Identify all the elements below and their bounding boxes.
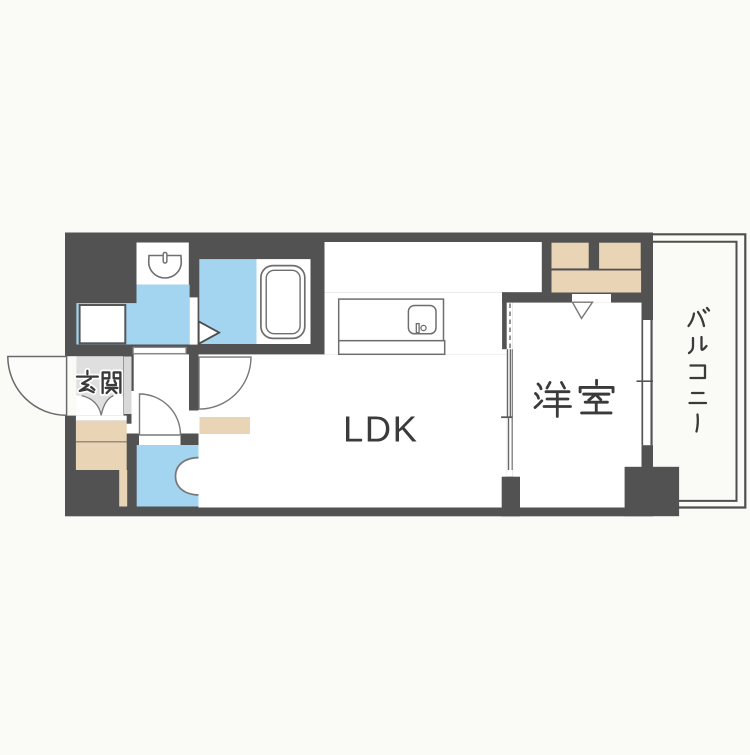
svg-text:LDK: LDK <box>343 409 419 450</box>
